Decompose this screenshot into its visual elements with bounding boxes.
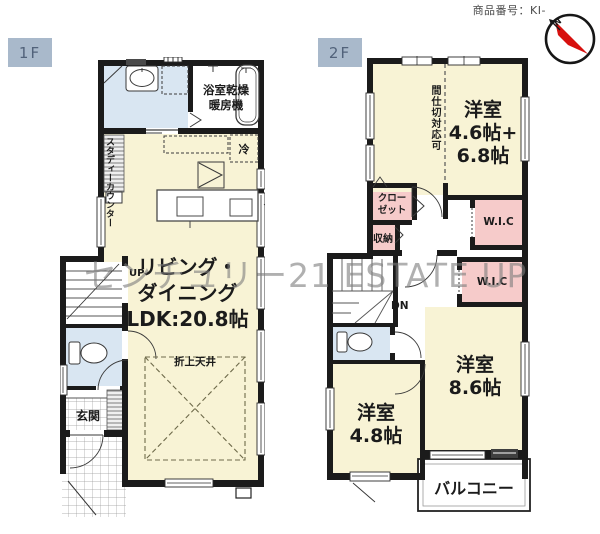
floor1-tag: 1F — [8, 38, 52, 67]
bedroom2-size: 8.6帖 — [435, 377, 515, 400]
bedroom1-label: 洋室 4.6帖+ 6.8帖 — [433, 99, 533, 168]
closet-line2: ゼット — [372, 205, 412, 217]
bedroom1-size2: 6.8帖 — [433, 145, 533, 168]
product-number: 商品番号：KI- — [473, 2, 546, 18]
floorplan-sheet: 商品番号：KI- N 1F 2F — [0, 0, 600, 534]
bedroom2-name: 洋室 — [435, 354, 515, 377]
bedroom3-size: 4.8帖 — [340, 425, 412, 448]
toilet-icon-2f — [337, 332, 372, 352]
sink-icon — [126, 66, 158, 91]
outdoor-unit-box — [236, 488, 251, 498]
study-counter-label: スタディー カウンター — [104, 137, 114, 227]
toilet-icon — [69, 342, 107, 364]
bedroom3-label: 洋室 4.8帖 — [340, 402, 412, 448]
toilet-door-arc-2f — [395, 332, 421, 358]
study-counter-line2: カウンター — [104, 182, 114, 227]
washroom-window-dark — [126, 59, 146, 65]
ldk-line3: LDK:20.8帖 — [115, 306, 260, 332]
storage-label: 収納 — [368, 230, 398, 245]
closet-label: クロー ゼット — [372, 193, 412, 217]
study-counter-line1: スタディー — [104, 137, 114, 182]
stairs-down-label: DN — [391, 300, 409, 312]
fridge-label: 冷 — [230, 141, 258, 157]
entrance-label: 玄関 — [68, 407, 108, 424]
bedroom1-name: 洋室 — [433, 99, 533, 122]
bedroom2-label: 洋室 8.6帖 — [435, 354, 515, 400]
wic-upper-label: W.I.C — [475, 216, 522, 228]
bath-unit-label: 浴室乾燥 暖房機 — [195, 83, 257, 113]
raised-ceiling-label: 折上天井 — [145, 354, 245, 369]
floor1-tag-label: 1F — [19, 44, 41, 62]
dark-window — [491, 449, 518, 458]
bath-unit-line1: 浴室乾燥 — [195, 83, 257, 98]
balcony-label: バルコニー — [421, 475, 527, 499]
bath-unit-line2: 暖房機 — [195, 98, 257, 113]
bedroom1-size1: 4.6帖+ — [433, 122, 533, 145]
bedroom3-name: 洋室 — [340, 402, 412, 425]
closet-line1: クロー — [372, 193, 412, 205]
watermark: センチュリー21 ESTATE UP — [84, 249, 527, 297]
flue-diagonal-mark — [353, 483, 375, 502]
washroom-sliding-door — [146, 130, 178, 133]
